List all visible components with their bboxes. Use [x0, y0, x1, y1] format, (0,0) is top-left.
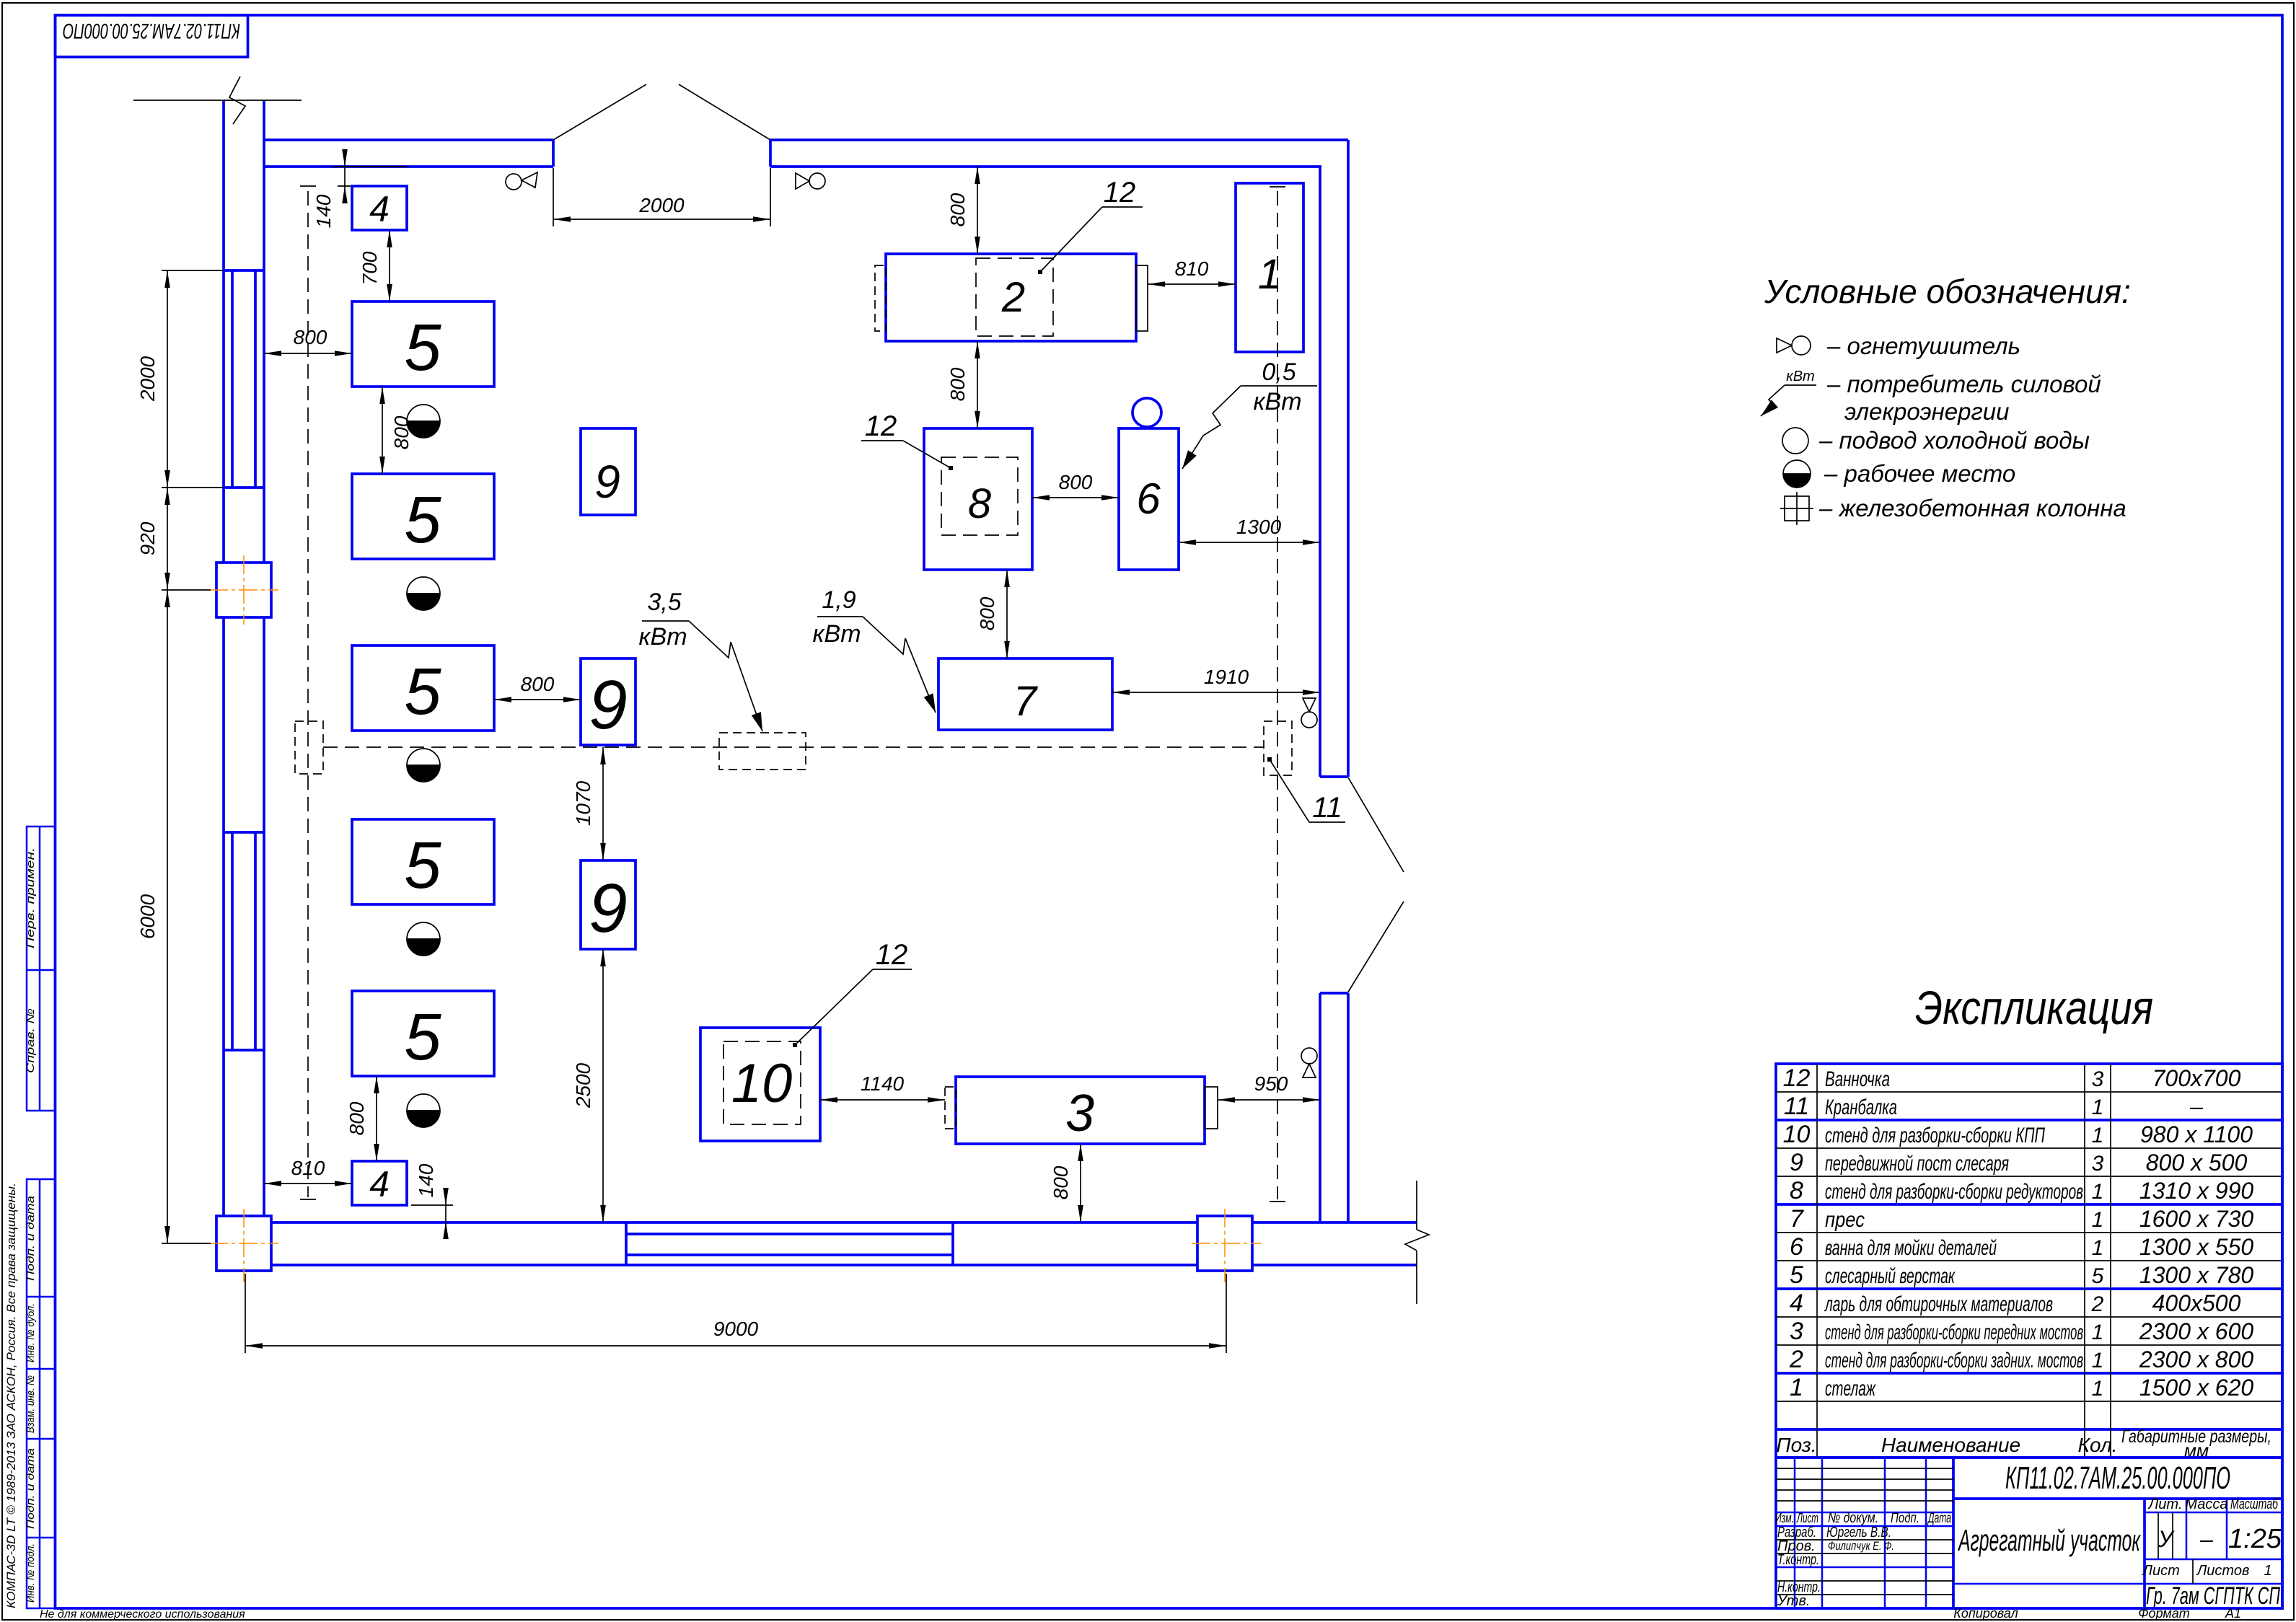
svg-text:слесарный верстак: слесарный верстак: [1825, 1264, 1956, 1288]
svg-text:9: 9: [589, 870, 627, 947]
svg-text:№ докум.: № докум.: [1828, 1510, 1878, 1526]
svg-text:Утв.: Утв.: [1777, 1593, 1810, 1609]
svg-text:–: –: [2189, 1093, 2203, 1119]
svg-text:кВт: кВт: [638, 623, 687, 651]
svg-text:ларь для обтирочных материалов: ларь для обтирочных материалов: [1824, 1292, 2053, 1316]
svg-text:800: 800: [1050, 1165, 1072, 1199]
svg-text:2000: 2000: [136, 356, 159, 402]
svg-text:Поз.: Поз.: [1776, 1434, 1816, 1456]
svg-text:2: 2: [1789, 1346, 1803, 1373]
svg-text:1300 х 550: 1300 х 550: [2139, 1234, 2254, 1260]
svg-text:Агрегатный участок: Агрегатный участок: [1957, 1523, 2141, 1557]
svg-text:800: 800: [390, 415, 413, 449]
svg-text:5: 5: [404, 1000, 441, 1074]
svg-text:1: 1: [2092, 1124, 2104, 1147]
svg-text:– потребитель силовой: – потребитель силовой: [1826, 371, 2101, 397]
svg-text:7: 7: [1013, 678, 1039, 725]
svg-text:810: 810: [291, 1157, 325, 1179]
svg-text:стенд для разборки-сборки КПП: стенд для разборки-сборки КПП: [1825, 1124, 2045, 1147]
svg-text:Не для коммерческого использов: Не для коммерческого использования: [40, 1608, 245, 1621]
svg-text:Масштаб: Масштаб: [2230, 1497, 2279, 1512]
svg-text:1: 1: [2264, 1563, 2271, 1579]
svg-text:1070: 1070: [572, 780, 594, 826]
svg-text:Лист: Лист: [1796, 1511, 1818, 1525]
svg-text:0,5: 0,5: [1262, 358, 1296, 386]
svg-text:1300 х 780: 1300 х 780: [2139, 1262, 2254, 1288]
svg-text:9: 9: [1790, 1149, 1803, 1176]
svg-text:Масса: Масса: [2185, 1497, 2227, 1512]
svg-text:передвижной пост слесаря: передвижной пост слесаря: [1825, 1152, 2009, 1176]
svg-text:12: 12: [1783, 1065, 1811, 1092]
svg-text:5: 5: [404, 483, 441, 557]
svg-text:Лист: Лист: [2141, 1563, 2180, 1579]
svg-text:5: 5: [404, 655, 441, 728]
svg-text:5: 5: [404, 311, 441, 384]
svg-text:5: 5: [1790, 1261, 1803, 1289]
svg-text:2000: 2000: [638, 194, 685, 216]
svg-text:Подп. и дата: Подп. и дата: [25, 1196, 37, 1281]
svg-text:3: 3: [2092, 1067, 2104, 1091]
svg-text:6000: 6000: [136, 894, 159, 939]
svg-text:9: 9: [589, 666, 627, 744]
svg-text:1: 1: [2092, 1321, 2104, 1344]
svg-text:У: У: [2158, 1526, 2176, 1552]
svg-text:А1: А1: [2225, 1606, 2241, 1621]
svg-text:стелаж: стелаж: [1825, 1377, 1876, 1401]
svg-text:810: 810: [1175, 257, 1209, 280]
svg-text:кВт: кВт: [1253, 388, 1301, 415]
svg-text:3,5: 3,5: [647, 589, 681, 616]
svg-text:9000: 9000: [713, 1318, 759, 1340]
svg-text:1910: 1910: [1204, 666, 1249, 688]
svg-text:Экспликация: Экспликация: [1915, 981, 2153, 1034]
svg-text:Наименование: Наименование: [1881, 1434, 2020, 1456]
svg-text:2: 2: [2091, 1292, 2104, 1316]
svg-text:Условные обозначения:: Условные обозначения:: [1764, 273, 2131, 310]
svg-text:элекроэнергии: элекроэнергии: [1844, 398, 2009, 425]
svg-text:800: 800: [521, 673, 555, 695]
svg-text:2: 2: [1001, 274, 1025, 321]
svg-text:1500 х 620: 1500 х 620: [2139, 1375, 2254, 1401]
svg-text:10: 10: [1783, 1121, 1811, 1148]
svg-text:980 х 1100: 980 х 1100: [2140, 1121, 2253, 1147]
svg-text:5: 5: [404, 829, 441, 902]
svg-text:1: 1: [2092, 1096, 2104, 1119]
svg-text:1: 1: [2092, 1180, 2104, 1204]
svg-text:1310 х 990: 1310 х 990: [2139, 1178, 2254, 1204]
svg-text:кВт: кВт: [1786, 369, 1814, 384]
svg-text:КП11.02.7АМ.25.00.000ПО: КП11.02.7АМ.25.00.000ПО: [2005, 1460, 2230, 1496]
svg-text:6: 6: [1136, 475, 1161, 523]
svg-text:2300 х 600: 2300 х 600: [2139, 1318, 2254, 1344]
svg-text:1300: 1300: [1236, 516, 1282, 538]
svg-text:1,9: 1,9: [822, 586, 855, 614]
svg-text:стенд для разборки-сборки задн: стенд для разборки-сборки задних. мостов: [1825, 1349, 2083, 1372]
svg-text:Подп. и дата: Подп. и дата: [25, 1448, 37, 1529]
svg-text:1: 1: [2092, 1349, 2104, 1372]
svg-text:Кранбалка: Кранбалка: [1825, 1096, 1897, 1119]
svg-text:800: 800: [294, 326, 327, 348]
svg-text:Копировал: Копировал: [1953, 1606, 2018, 1621]
svg-text:Справ. №: Справ. №: [25, 1008, 37, 1073]
svg-text:920: 920: [136, 521, 159, 555]
svg-text:140: 140: [312, 194, 335, 228]
svg-text:3: 3: [1790, 1318, 1803, 1345]
svg-text:800: 800: [946, 193, 969, 226]
svg-text:11: 11: [1784, 1093, 1809, 1120]
svg-text:Инв. № дубл.: Инв. № дубл.: [25, 1303, 37, 1362]
svg-text:12: 12: [876, 939, 908, 971]
svg-text:Филипчук Е. Ф.: Филипчук Е. Ф.: [1828, 1539, 1894, 1553]
svg-text:9: 9: [594, 456, 620, 508]
svg-text:8: 8: [968, 480, 991, 527]
svg-text:700х700: 700х700: [2152, 1065, 2241, 1091]
svg-text:–: –: [2199, 1526, 2213, 1552]
svg-text:5: 5: [2092, 1264, 2104, 1288]
svg-text:400х500: 400х500: [2152, 1290, 2241, 1316]
svg-text:Лит.: Лит.: [2147, 1497, 2183, 1512]
svg-text:4: 4: [1790, 1290, 1803, 1317]
svg-text:ванна для мойки деталей: ванна для мойки деталей: [1825, 1236, 1997, 1260]
svg-text:800: 800: [976, 596, 998, 630]
svg-text:Изм.: Изм.: [1775, 1511, 1794, 1525]
svg-text:Кол.: Кол.: [2077, 1434, 2117, 1456]
svg-text:4: 4: [369, 1164, 390, 1204]
svg-text:4: 4: [369, 189, 390, 229]
svg-text:1140: 1140: [861, 1072, 905, 1095]
svg-text:– рабочее место: – рабочее место: [1824, 460, 2015, 487]
svg-text:Ванночка: Ванночка: [1825, 1067, 1890, 1091]
svg-text:2300 х 800: 2300 х 800: [2139, 1346, 2254, 1372]
svg-text:Формат: Формат: [2138, 1606, 2189, 1621]
svg-text:3: 3: [1065, 1085, 1094, 1142]
svg-text:Подп.: Подп.: [1891, 1511, 1919, 1526]
svg-text:Дата: Дата: [1927, 1511, 1951, 1526]
svg-text:950: 950: [1254, 1072, 1288, 1095]
svg-text:Перв. примен.: Перв. примен.: [25, 847, 37, 948]
svg-text:3: 3: [2092, 1152, 2104, 1176]
svg-text:1:25: 1:25: [2228, 1524, 2282, 1554]
svg-text:КОМПАС-3D LT © 1989-2013 ЗАО А: КОМПАС-3D LT © 1989-2013 ЗАО АСКОН, Росс…: [4, 1183, 18, 1608]
svg-text:140: 140: [415, 1163, 437, 1197]
svg-text:11: 11: [1312, 792, 1342, 824]
svg-text:1600 х 730: 1600 х 730: [2139, 1206, 2254, 1232]
svg-text:– подвод холодной воды: – подвод холодной воды: [1818, 427, 2090, 454]
svg-text:стенд для разборки-сборки реду: стенд для разборки-сборки редукторов: [1825, 1180, 2083, 1204]
svg-text:10: 10: [731, 1053, 793, 1114]
svg-text:КП11.02.7АМ.25.00.000ПО: КП11.02.7АМ.25.00.000ПО: [63, 19, 240, 43]
svg-text:7: 7: [1790, 1205, 1804, 1233]
svg-text:1: 1: [1790, 1374, 1803, 1401]
svg-text:800: 800: [1059, 471, 1093, 493]
svg-text:кВт: кВт: [812, 620, 861, 648]
svg-text:800 х 500: 800 х 500: [2146, 1150, 2248, 1176]
svg-text:Т.контр.: Т.контр.: [1777, 1552, 1819, 1568]
svg-text:Инв. № подл.: Инв. № подл.: [25, 1543, 37, 1603]
svg-text:прес: прес: [1825, 1208, 1865, 1232]
svg-text:Взам. инв. №: Взам. инв. №: [25, 1375, 37, 1433]
svg-text:800: 800: [946, 367, 969, 401]
svg-text:– огнетушитель: – огнетушитель: [1826, 332, 2020, 359]
svg-text:1: 1: [2092, 1236, 2104, 1260]
svg-text:800: 800: [346, 1101, 368, 1135]
svg-text:Юргель В.В.: Юргель В.В.: [1826, 1525, 1891, 1541]
svg-text:стенд для разборки-сборки пере: стенд для разборки-сборки передних мосто…: [1825, 1321, 2083, 1344]
svg-text:1: 1: [2092, 1208, 2104, 1232]
svg-text:8: 8: [1790, 1177, 1803, 1204]
svg-text:12: 12: [1104, 177, 1136, 208]
svg-text:6: 6: [1790, 1233, 1803, 1261]
svg-text:700: 700: [359, 251, 381, 285]
svg-text:– железобетонная колонна: – железобетонная колонна: [1818, 495, 2126, 521]
svg-text:12: 12: [865, 410, 897, 442]
svg-text:1: 1: [2092, 1377, 2104, 1401]
svg-text:Листов: Листов: [2196, 1563, 2250, 1579]
svg-text:2500: 2500: [572, 1062, 594, 1108]
